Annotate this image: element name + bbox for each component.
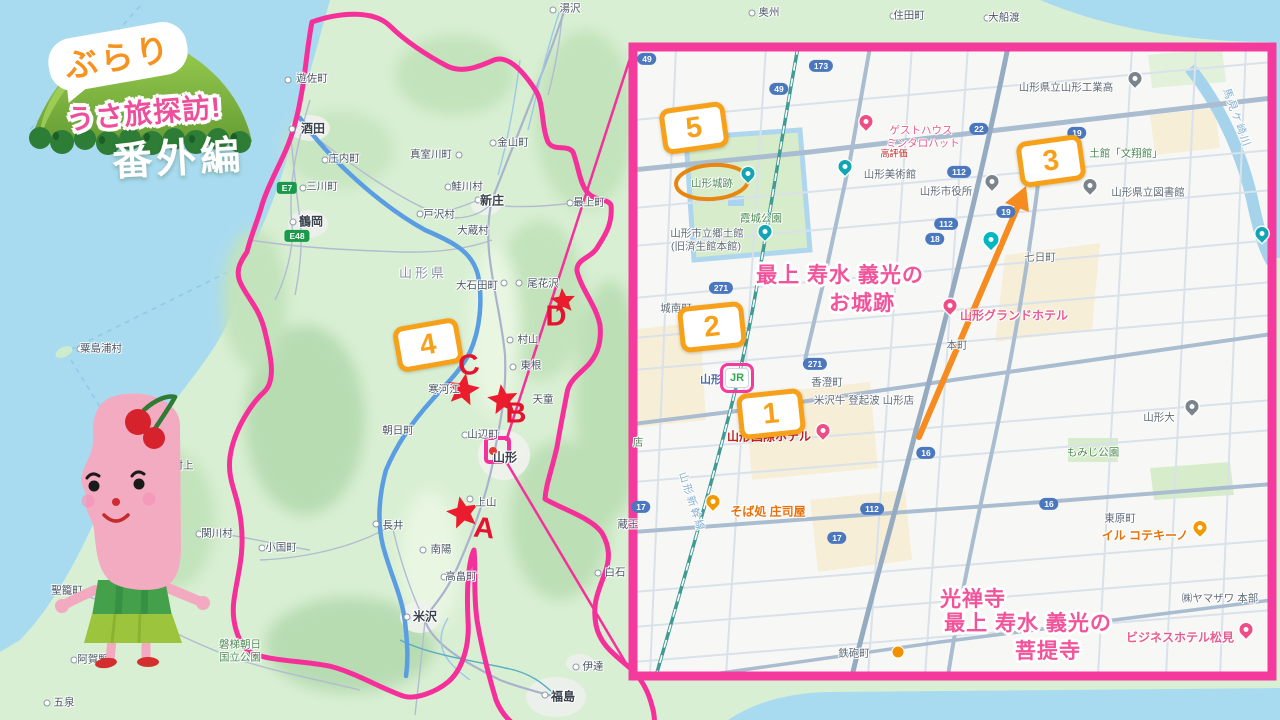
- restaurant-logo-icon: [787, 393, 798, 404]
- yamagata-city-dot: [489, 447, 497, 455]
- jr-station-highlight: JR: [720, 363, 754, 393]
- jr-logo-icon: JR: [725, 368, 749, 388]
- travel-map-graphic: 湯沢遊佐町酒田庄内町三川町鶴岡真室川町金山町鮭川村新庄戸沢村大蔵村最上町山形県大…: [0, 0, 1280, 720]
- orange-dot-marker: [892, 646, 905, 659]
- mascot-character: [40, 380, 270, 680]
